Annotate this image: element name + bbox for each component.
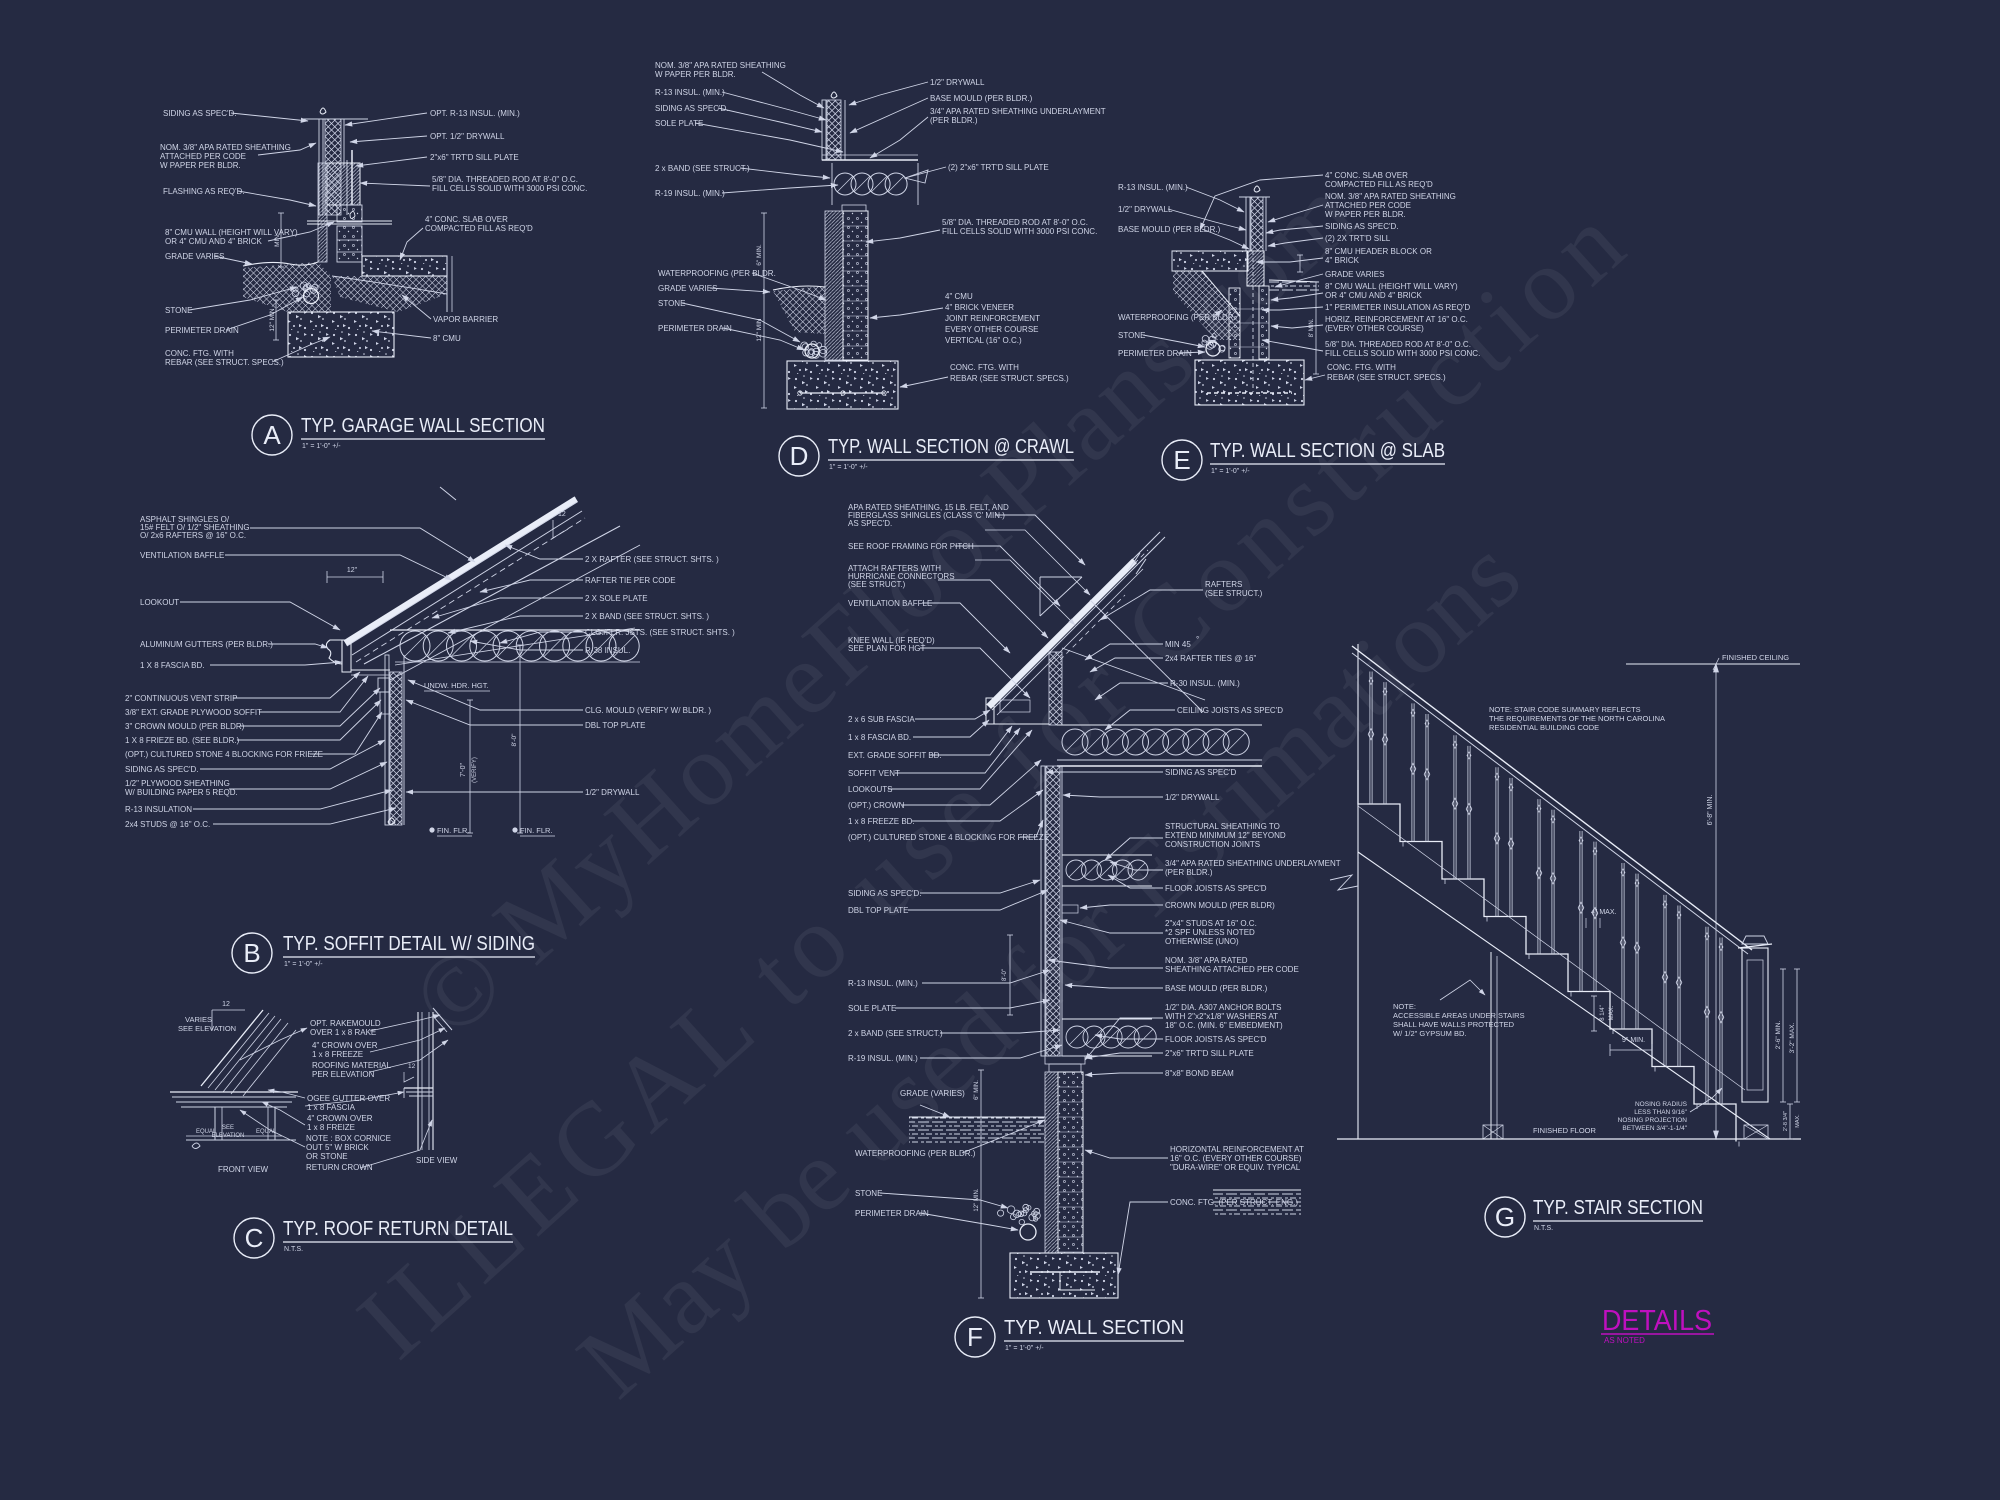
svg-text:R-30 INSUL. (MIN.): R-30 INSUL. (MIN.): [1170, 679, 1240, 688]
svg-text:BASE MOULD (PER BLDR.): BASE MOULD (PER BLDR.): [1118, 225, 1221, 234]
svg-text:ELEVATION: ELEVATION: [212, 1133, 245, 1139]
svg-text:2x4 RAFTER TIES @ 16": 2x4 RAFTER TIES @ 16": [1165, 654, 1256, 663]
svg-text:TYP. WALL SECTION @ SLAB: TYP. WALL SECTION @ SLAB: [1210, 440, 1445, 462]
svg-text:OR 4" CMU AND 4" BRICK: OR 4" CMU AND 4" BRICK: [1325, 291, 1422, 300]
svg-text:ROOFING MATERIAL: ROOFING MATERIAL: [312, 1061, 392, 1070]
svg-text:(EVERY OTHER COURSE): (EVERY OTHER COURSE): [1325, 324, 1424, 333]
svg-text:NOSING PROJECTION: NOSING PROJECTION: [1618, 1117, 1688, 1124]
svg-text:R-13 INSUL. (MIN.): R-13 INSUL. (MIN.): [848, 979, 918, 988]
svg-text:VAPOR BARRIER: VAPOR BARRIER: [433, 315, 498, 324]
svg-text:1/2" DRYWALL: 1/2" DRYWALL: [930, 78, 985, 87]
svg-text:AS SPEC'D.: AS SPEC'D.: [848, 519, 892, 528]
svg-text:3/4" APA RATED SHEATHING UNDER: 3/4" APA RATED SHEATHING UNDERLAYMENT: [930, 107, 1106, 116]
svg-text:3'-2" MAX.: 3'-2" MAX.: [1789, 1022, 1796, 1053]
svg-text:REBAR (SEE STRUCT. SPECS.): REBAR (SEE STRUCT. SPECS.): [165, 358, 284, 367]
svg-text:SHEATHING ATTACHED PER CODE: SHEATHING ATTACHED PER CODE: [1165, 965, 1299, 974]
svg-text:R-13 INSUL. (MIN.): R-13 INSUL. (MIN.): [655, 88, 725, 97]
svg-text:TYP. STAIR SECTION: TYP. STAIR SECTION: [1533, 1197, 1703, 1219]
svg-text:STONE: STONE: [1118, 331, 1145, 340]
svg-text:REBAR (SEE STRUCT. SPECS.): REBAR (SEE STRUCT. SPECS.): [950, 374, 1069, 383]
svg-text:(SEE STRUCT.): (SEE STRUCT.): [1205, 589, 1263, 598]
svg-text:LOOKOUT: LOOKOUT: [140, 598, 179, 607]
svg-text:1 x 8 FREEZE BD.: 1 x 8 FREEZE BD.: [848, 817, 915, 826]
svg-text:DETAILS: DETAILS: [1602, 1305, 1712, 1337]
svg-text:G: G: [1495, 1202, 1515, 1232]
svg-text:2 X BAND (SEE STRUCT. SHTS. ): 2 X BAND (SEE STRUCT. SHTS. ): [585, 612, 709, 621]
svg-text:(PER BLDR.): (PER BLDR.): [930, 116, 978, 125]
svg-text:1/2" DRYWALL: 1/2" DRYWALL: [585, 788, 640, 797]
svg-text:(OPT.) CROWN: (OPT.) CROWN: [848, 801, 905, 810]
svg-text:(SEE STRUCT.): (SEE STRUCT.): [848, 580, 906, 589]
svg-text:PER ELEVATION: PER ELEVATION: [312, 1070, 375, 1079]
svg-text:8' MIN.: 8' MIN.: [1309, 318, 1315, 337]
svg-text:NOTE : BOX CORNICE: NOTE : BOX CORNICE: [306, 1134, 391, 1143]
svg-text:SIDING AS SPEC'D: SIDING AS SPEC'D: [1165, 768, 1237, 777]
svg-text:CONC. FTG. WITH: CONC. FTG. WITH: [950, 363, 1019, 372]
svg-text:NOM. 3/8" APA RATED SHEATHING: NOM. 3/8" APA RATED SHEATHING: [1325, 192, 1456, 201]
svg-text:8" CMU HEADER BLOCK OR: 8" CMU HEADER BLOCK OR: [1325, 247, 1432, 256]
svg-text:SIDING AS SPEC'D.: SIDING AS SPEC'D.: [125, 765, 199, 774]
svg-text:R-38 INSUL.: R-38 INSUL.: [585, 646, 630, 655]
svg-text:1" = 1'-0" +/-: 1" = 1'-0" +/-: [829, 464, 868, 471]
svg-text:8'-0": 8'-0": [511, 733, 518, 747]
svg-text:(VERIFY): (VERIFY): [472, 757, 478, 783]
svg-text:STRUCTURAL SHEATHING TO: STRUCTURAL SHEATHING TO: [1165, 822, 1280, 831]
svg-text:4" CONC. SLAB OVER: 4" CONC. SLAB OVER: [1325, 171, 1408, 180]
svg-text:3/8" EXT. GRADE PLYWOOD SOFFIT: 3/8" EXT. GRADE PLYWOOD SOFFIT: [125, 708, 262, 717]
svg-text:FILL CELLS SOLID WITH 3000 PSI: FILL CELLS SOLID WITH 3000 PSI CONC.: [942, 227, 1097, 236]
svg-text:W PAPER PER BLDR.: W PAPER PER BLDR.: [655, 70, 736, 79]
svg-text:1 x 8 FREEZE: 1 x 8 FREEZE: [312, 1050, 363, 1059]
svg-text:NOSING RADIUS: NOSING RADIUS: [1635, 1101, 1688, 1108]
svg-text:SIDING AS SPEC'D.: SIDING AS SPEC'D.: [848, 889, 922, 898]
svg-text:BASE MOULD (PER BLDR.): BASE MOULD (PER BLDR.): [930, 94, 1033, 103]
svg-text:EVERY OTHER COURSE: EVERY OTHER COURSE: [945, 325, 1039, 334]
svg-text:1" = 1'-0" +/-: 1" = 1'-0" +/-: [302, 443, 341, 450]
svg-text:SIDING AS SPEC'D.: SIDING AS SPEC'D.: [655, 104, 729, 113]
svg-text:FLOOR JOISTS AS SPEC'D: FLOOR JOISTS AS SPEC'D: [1165, 1035, 1267, 1044]
svg-text:5/8" DIA. THREADED ROD AT 8'-0: 5/8" DIA. THREADED ROD AT 8'-0" O.C.: [942, 218, 1088, 227]
svg-text:OPT. R-13 INSUL. (MIN.): OPT. R-13 INSUL. (MIN.): [430, 109, 520, 118]
svg-text:SIDING AS SPEC'D.: SIDING AS SPEC'D.: [1325, 222, 1399, 231]
svg-text:SEE: SEE: [222, 1125, 234, 1131]
svg-text:FLASHING AS REQ'D.: FLASHING AS REQ'D.: [163, 187, 245, 196]
svg-text:CONSTRUCTION JOINTS: CONSTRUCTION JOINTS: [1165, 840, 1260, 849]
svg-text:FRONT VIEW: FRONT VIEW: [218, 1165, 269, 1174]
svg-text:FINISHED FLOOR: FINISHED FLOOR: [1533, 1126, 1597, 1135]
svg-text:R-19 INSUL. (MIN.): R-19 INSUL. (MIN.): [848, 1054, 918, 1063]
svg-text:1/2" DIA. A307 ANCHOR BOLTS: 1/2" DIA. A307 ANCHOR BOLTS: [1165, 1003, 1282, 1012]
svg-text:12" MIN: 12" MIN: [756, 318, 763, 342]
svg-text:PERIMETER DRAIN: PERIMETER DRAIN: [1118, 349, 1192, 358]
svg-text:1 x 8 FREIZE: 1 x 8 FREIZE: [307, 1123, 355, 1132]
svg-text:12": 12": [347, 567, 358, 574]
svg-text:CROWN MOULD (PER BLDR): CROWN MOULD (PER BLDR): [1165, 901, 1275, 910]
svg-text:2x4 STUDS @ 16" O.C.: 2x4 STUDS @ 16" O.C.: [125, 820, 210, 829]
svg-text:THE REQUIREMENTS OF THE NORTH: THE REQUIREMENTS OF THE NORTH CAROLINA: [1489, 714, 1665, 723]
svg-text:C: C: [245, 1223, 264, 1253]
svg-text:2 x BAND (SEE STRUCT.): 2 x BAND (SEE STRUCT.): [655, 164, 750, 173]
svg-text:D: D: [790, 441, 809, 471]
svg-text:°: °: [1196, 635, 1199, 644]
svg-text:2" CONTINUOUS VENT STRIP: 2" CONTINUOUS VENT STRIP: [125, 694, 237, 703]
svg-text:OVER 1 x 8 RAKE: OVER 1 x 8 RAKE: [310, 1028, 376, 1037]
svg-text:2 x BAND (SEE STRUCT.): 2 x BAND (SEE STRUCT.): [848, 1029, 943, 1038]
svg-text:DBL TOP PLATE: DBL TOP PLATE: [848, 906, 908, 915]
svg-text:F: F: [967, 1322, 983, 1352]
svg-text:RAFTERS: RAFTERS: [1205, 580, 1242, 589]
svg-text:TYP. ROOF RETURN DETAIL: TYP. ROOF RETURN DETAIL: [283, 1218, 513, 1240]
svg-text:6" MIN.: 6" MIN.: [974, 1080, 980, 1100]
svg-text:OGEE GUTTER OVER: OGEE GUTTER OVER: [307, 1094, 390, 1103]
svg-text:R-19 INSUL. (MIN.): R-19 INSUL. (MIN.): [655, 189, 725, 198]
svg-text:18" O.C. (MIN. 6" EMBEDMENT): 18" O.C. (MIN. 6" EMBEDMENT): [1165, 1021, 1283, 1030]
svg-text:4" BRICK: 4" BRICK: [1325, 256, 1360, 265]
svg-text:WATERPROOFING (PER BLDR.: WATERPROOFING (PER BLDR.: [1118, 313, 1236, 322]
svg-text:HORIZONTAL REINFORCEMENT AT: HORIZONTAL REINFORCEMENT AT: [1170, 1145, 1304, 1154]
svg-text:STONE: STONE: [165, 306, 192, 315]
svg-text:WATERPROOFING (PER BLDR.: WATERPROOFING (PER BLDR.: [658, 269, 776, 278]
svg-text:N.T.S.: N.T.S.: [284, 1246, 303, 1253]
svg-text:DBL TOP PLATE: DBL TOP PLATE: [585, 721, 645, 730]
svg-text:(2) 2"x6" TRT'D SILL PLATE: (2) 2"x6" TRT'D SILL PLATE: [948, 163, 1049, 172]
svg-text:1/2" PLYWOOD SHEATHING: 1/2" PLYWOOD SHEATHING: [125, 779, 230, 788]
svg-text:4" CROWN OVER: 4" CROWN OVER: [307, 1114, 373, 1123]
svg-text:(PER BLDR.): (PER BLDR.): [1165, 868, 1213, 877]
svg-text:LOOKOUTS: LOOKOUTS: [848, 785, 892, 794]
svg-text:SEE ELEVATION: SEE ELEVATION: [178, 1024, 236, 1033]
svg-text:1/2" DRYWALL: 1/2" DRYWALL: [1118, 205, 1173, 214]
svg-text:12: 12: [222, 1001, 230, 1008]
svg-text:SIDE VIEW: SIDE VIEW: [416, 1156, 458, 1165]
svg-text:R-13 INSULATION: R-13 INSULATION: [125, 805, 192, 814]
svg-text:8" CMU WALL (HEIGHT WILL VARY): 8" CMU WALL (HEIGHT WILL VARY): [165, 228, 298, 237]
svg-text:UNDW. HDR. HGT.: UNDW. HDR. HGT.: [424, 681, 489, 690]
svg-text:FINISHED CEILING: FINISHED CEILING: [1722, 653, 1789, 662]
svg-text:OTHERWISE (UNO): OTHERWISE (UNO): [1165, 937, 1239, 946]
svg-text:NOM. 3/8" APA RATED SHEATHING: NOM. 3/8" APA RATED SHEATHING: [160, 143, 291, 152]
svg-text:E: E: [1173, 445, 1190, 475]
svg-text:TYP. WALL SECTION: TYP. WALL SECTION: [1004, 1317, 1184, 1339]
svg-text:CONC. FTG. WITH: CONC. FTG. WITH: [1327, 363, 1396, 372]
svg-text:ATTACHED PER CODE: ATTACHED PER CODE: [1325, 201, 1411, 210]
svg-text:O/ 2x6 RAFTERS @ 16" O.C.: O/ 2x6 RAFTERS @ 16" O.C.: [140, 531, 246, 540]
svg-text:MAX.: MAX.: [1795, 1114, 1801, 1128]
svg-text:VENTILATION BAFFLE: VENTILATION BAFFLE: [848, 599, 932, 608]
svg-text:1 x 8 FASCIA: 1 x 8 FASCIA: [307, 1103, 356, 1112]
svg-text:OPT. RAKEMOULD: OPT. RAKEMOULD: [310, 1019, 381, 1028]
svg-text:"DURA-WIRE" OR EQUIV. TYPICAL: "DURA-WIRE" OR EQUIV. TYPICAL: [1170, 1163, 1301, 1172]
svg-text:2 x 6 SUB FASCIA: 2 x 6 SUB FASCIA: [848, 715, 915, 724]
svg-text:1 X 8 FRIEZE BD. (SEE BLDR.): 1 X 8 FRIEZE BD. (SEE BLDR.): [125, 736, 240, 745]
svg-text:JOINT REINFORCEMENT: JOINT REINFORCEMENT: [945, 314, 1040, 323]
svg-text:B: B: [243, 938, 260, 968]
svg-text:8"x8" BOND BEAM: 8"x8" BOND BEAM: [1165, 1069, 1234, 1078]
svg-text:2"x6" TRT'D SILL PLATE: 2"x6" TRT'D SILL PLATE: [430, 153, 519, 162]
svg-text:1" = 1'-0" +/-: 1" = 1'-0" +/-: [1211, 468, 1250, 475]
svg-text:TYP. SOFFIT DETAIL W/ SIDING: TYP. SOFFIT DETAIL W/ SIDING: [283, 933, 535, 955]
svg-text:STONE: STONE: [658, 299, 685, 308]
svg-text:OUT 5" W BRICK: OUT 5" W BRICK: [306, 1143, 369, 1152]
svg-text:NOM. 3/8" APA RATED: NOM. 3/8" APA RATED: [1165, 956, 1248, 965]
svg-text:4" CROWN OVER: 4" CROWN OVER: [312, 1041, 378, 1050]
svg-text:BETWEEN 3/4"-1-1/4": BETWEEN 3/4"-1-1/4": [1622, 1125, 1687, 1132]
svg-text:(2) 2X TRT'D SILL: (2) 2X TRT'D SILL: [1325, 234, 1391, 243]
svg-text:(OPT.) CULTURED STONE 4 BLOCKI: (OPT.) CULTURED STONE 4 BLOCKING FOR FRI…: [125, 750, 323, 759]
svg-text:NOTE: STAIR CODE SUMMARY REFLE: NOTE: STAIR CODE SUMMARY REFLECTS: [1489, 705, 1641, 714]
svg-text:BASE MOULD (PER BLDR.): BASE MOULD (PER BLDR.): [1165, 984, 1268, 993]
svg-text:PERIMETER DRAIN: PERIMETER DRAIN: [658, 324, 732, 333]
svg-text:CEILING JOISTS AS SPEC'D: CEILING JOISTS AS SPEC'D: [1177, 706, 1283, 715]
svg-text:FLOOR JOISTS AS SPEC'D: FLOOR JOISTS AS SPEC'D: [1165, 884, 1267, 893]
svg-text:SOFFIT VENT: SOFFIT VENT: [848, 769, 900, 778]
svg-text:WATERPROOFING (PER BLDR.): WATERPROOFING (PER BLDR.): [855, 1149, 976, 1158]
svg-text:4" CONC. SLAB OVER: 4" CONC. SLAB OVER: [425, 215, 508, 224]
svg-text:HORIZ. REINFORCEMENT AT 16" O.: HORIZ. REINFORCEMENT AT 16" O.C.: [1325, 315, 1468, 324]
svg-text:*2 SPF UNLESS NOTED: *2 SPF UNLESS NOTED: [1165, 928, 1255, 937]
svg-text:8 1/4": 8 1/4": [1600, 1005, 1606, 1020]
svg-text:12: 12: [408, 1063, 416, 1070]
svg-text:SHALL HAVE WALLS PROTECTED: SHALL HAVE WALLS PROTECTED: [1393, 1020, 1515, 1029]
svg-text:5/8" DIA. THREADED ROD AT 8'-0: 5/8" DIA. THREADED ROD AT 8'-0" O.C.: [1325, 340, 1471, 349]
svg-text:MAX.: MAX.: [1609, 1005, 1615, 1020]
svg-text:NOM. 3/8" APA RATED SHEATHING: NOM. 3/8" APA RATED SHEATHING: [655, 61, 786, 70]
svg-text:REBAR (SEE STRUCT. SPECS.): REBAR (SEE STRUCT. SPECS.): [1327, 373, 1446, 382]
svg-text:12" MIN: 12" MIN: [269, 308, 276, 332]
svg-text:MIN 45: MIN 45: [1165, 640, 1191, 649]
svg-text:VARIES: VARIES: [185, 1015, 212, 1024]
svg-text:1" = 1'-0" +/-: 1" = 1'-0" +/-: [1005, 1345, 1044, 1352]
svg-text:3/4" APA RATED SHEATHING UNDER: 3/4" APA RATED SHEATHING UNDERLAYMENT: [1165, 859, 1341, 868]
svg-text:8'-0": 8'-0": [1002, 969, 1008, 981]
svg-text:W/ BUILDING PAPER 5 REQD.: W/ BUILDING PAPER 5 REQD.: [125, 788, 238, 797]
svg-text:1 x 8 FASCIA BD.: 1 x 8 FASCIA BD.: [848, 733, 911, 742]
svg-text:5/8" DIA. THREADED ROD AT 8'-0: 5/8" DIA. THREADED ROD AT 8'-0" O.C.: [432, 175, 578, 184]
svg-text:9" MIN.: 9" MIN.: [1622, 1037, 1645, 1044]
svg-text:ATTACHED PER CODE: ATTACHED PER CODE: [160, 152, 246, 161]
svg-text:6'-8" MIN.: 6'-8" MIN.: [1707, 795, 1714, 826]
svg-text:W PAPER PER BLDR.: W PAPER PER BLDR.: [160, 161, 241, 170]
svg-text:OR 4" CMU AND 4" BRICK: OR 4" CMU AND 4" BRICK: [165, 237, 262, 246]
svg-text:NOTE:: NOTE:: [1393, 1002, 1416, 1011]
svg-text:CLG./FLR. JSTS. (SEE STRUCT. S: CLG./FLR. JSTS. (SEE STRUCT. SHTS. ): [585, 628, 735, 637]
svg-text:1" = 1'-0" +/-: 1" = 1'-0" +/-: [284, 961, 323, 968]
svg-text:4" CMU: 4" CMU: [945, 292, 973, 301]
svg-text:(OPT.) CULTURED STONE 4 BLOCKI: (OPT.) CULTURED STONE 4 BLOCKING FOR FRE…: [848, 833, 1049, 842]
svg-text:3" CROWN MOULD (PER BLDR): 3" CROWN MOULD (PER BLDR): [125, 722, 245, 731]
svg-text:7'-0": 7'-0": [460, 763, 467, 777]
svg-text:STONE: STONE: [855, 1189, 882, 1198]
svg-text:8" CMU WALL (HEIGHT WILL VARY): 8" CMU WALL (HEIGHT WILL VARY): [1325, 282, 1458, 291]
svg-text:16" O.C. (EVERY OTHER COURSE): 16" O.C. (EVERY OTHER COURSE): [1170, 1154, 1302, 1163]
svg-text:2'-8 3/4": 2'-8 3/4": [1783, 1111, 1789, 1131]
svg-text:GRADE (VARIES): GRADE (VARIES): [900, 1089, 965, 1098]
svg-text:RAFTER TIE PER CODE: RAFTER TIE PER CODE: [585, 576, 676, 585]
svg-text:W PAPER PER BLDR.: W PAPER PER BLDR.: [1325, 210, 1406, 219]
svg-text:6" MIN.: 6" MIN.: [756, 244, 763, 266]
svg-text:EXTEND MINIMUM 12" BEYOND: EXTEND MINIMUM 12" BEYOND: [1165, 831, 1286, 840]
svg-text:2 X SOLE PLATE: 2 X SOLE PLATE: [585, 594, 648, 603]
svg-text:SOLE PLATE: SOLE PLATE: [848, 1004, 896, 1013]
svg-text:R-13 INSUL. (MIN.): R-13 INSUL. (MIN.): [1118, 183, 1188, 192]
svg-text:PERIMETER DRAIN: PERIMETER DRAIN: [165, 326, 239, 335]
svg-text:N.T.S.: N.T.S.: [1534, 1225, 1553, 1232]
svg-text:4" MAX.: 4" MAX.: [1591, 909, 1616, 916]
svg-text:GRADE VARIES: GRADE VARIES: [1325, 270, 1384, 279]
svg-text:COMPACTED FILL AS REQ'D: COMPACTED FILL AS REQ'D: [1325, 180, 1433, 189]
svg-text:CONC. FTG. WITH: CONC. FTG. WITH: [165, 349, 234, 358]
svg-text:SEE ROOF FRAMING FOR PITCH: SEE ROOF FRAMING FOR PITCH: [848, 542, 974, 551]
svg-text:ALUMINUM GUTTERS (PER BLDR.): ALUMINUM GUTTERS (PER BLDR.): [140, 640, 273, 649]
svg-text:VERTICAL (16" O.C.): VERTICAL (16" O.C.): [945, 336, 1022, 345]
svg-text:12: 12: [558, 511, 566, 518]
svg-text:FILL CELLS SOLID WITH 3000 PSI: FILL CELLS SOLID WITH 3000 PSI CONC.: [432, 184, 587, 193]
svg-text:TYP. WALL SECTION @ CRAWL: TYP. WALL SECTION @ CRAWL: [828, 436, 1074, 458]
svg-text:OR STONE: OR STONE: [306, 1152, 348, 1161]
svg-text:LESS THAN 9/16": LESS THAN 9/16": [1634, 1109, 1687, 1116]
svg-text:SEE PLAN FOR HGT: SEE PLAN FOR HGT: [848, 644, 925, 653]
svg-text:FILL CELLS SOLID WITH 3000 PSI: FILL CELLS SOLID WITH 3000 PSI CONC.: [1325, 349, 1480, 358]
svg-text:SIDING AS SPEC'D.: SIDING AS SPEC'D.: [163, 109, 237, 118]
svg-text:A: A: [263, 420, 281, 450]
svg-text:OPT. 1/2" DRYWALL: OPT. 1/2" DRYWALL: [430, 132, 505, 141]
svg-text:2"x4" STUDS AT 16" O.C.: 2"x4" STUDS AT 16" O.C.: [1165, 919, 1257, 928]
svg-text:2"x6" TRT'D SILL PLATE: 2"x6" TRT'D SILL PLATE: [1165, 1049, 1254, 1058]
svg-text:2'-6" MIN.: 2'-6" MIN.: [1775, 1021, 1782, 1050]
svg-text:1" PERIMETER INSULATION AS REQ: 1" PERIMETER INSULATION AS REQ'D: [1325, 303, 1470, 312]
svg-text:FIN. FLR.: FIN. FLR.: [520, 826, 553, 835]
svg-text:2 X RAFTER (SEE STRUCT. SHTS.: 2 X RAFTER (SEE STRUCT. SHTS. ): [585, 555, 719, 564]
svg-text:1/2" DRYWALL: 1/2" DRYWALL: [1165, 793, 1220, 802]
svg-text:TYP. GARAGE WALL SECTION: TYP. GARAGE WALL SECTION: [301, 415, 545, 437]
svg-text:CONC. FTG. (PER STRUCT. ENG.): CONC. FTG. (PER STRUCT. ENG.): [1170, 1198, 1298, 1207]
svg-text:PERIMETER DRAIN: PERIMETER DRAIN: [855, 1209, 929, 1218]
svg-text:CLG. MOULD (VERIFY W/ BLDR. ): CLG. MOULD (VERIFY W/ BLDR. ): [585, 706, 711, 715]
svg-text:VENTILATION BAFFLE: VENTILATION BAFFLE: [140, 551, 224, 560]
svg-text:GRADE VARIES: GRADE VARIES: [658, 284, 717, 293]
svg-text:WITH 2"x2"x1/8" WASHERS AT: WITH 2"x2"x1/8" WASHERS AT: [1165, 1012, 1278, 1021]
svg-text:8" CMU: 8" CMU: [433, 334, 461, 343]
svg-text:4" BRICK VENEER: 4" BRICK VENEER: [945, 303, 1014, 312]
svg-text:ACCESSIBLE AREAS UNDER STAIRS: ACCESSIBLE AREAS UNDER STAIRS: [1393, 1011, 1525, 1020]
svg-text:W/ 1/2" GYPSUM BD.: W/ 1/2" GYPSUM BD.: [1393, 1029, 1467, 1038]
svg-text:EXT. GRADE SOFFIT BD.: EXT. GRADE SOFFIT BD.: [848, 751, 942, 760]
svg-text:RESIDENTIAL BUILDING CODE: RESIDENTIAL BUILDING CODE: [1489, 723, 1599, 732]
svg-text:1 X 8 FASCIA BD.: 1 X 8 FASCIA BD.: [140, 661, 204, 670]
svg-text:AS NOTED: AS NOTED: [1604, 1336, 1645, 1345]
svg-text:FIN. FLR.: FIN. FLR.: [437, 826, 470, 835]
svg-text:COMPACTED FILL AS REQ'D: COMPACTED FILL AS REQ'D: [425, 224, 533, 233]
